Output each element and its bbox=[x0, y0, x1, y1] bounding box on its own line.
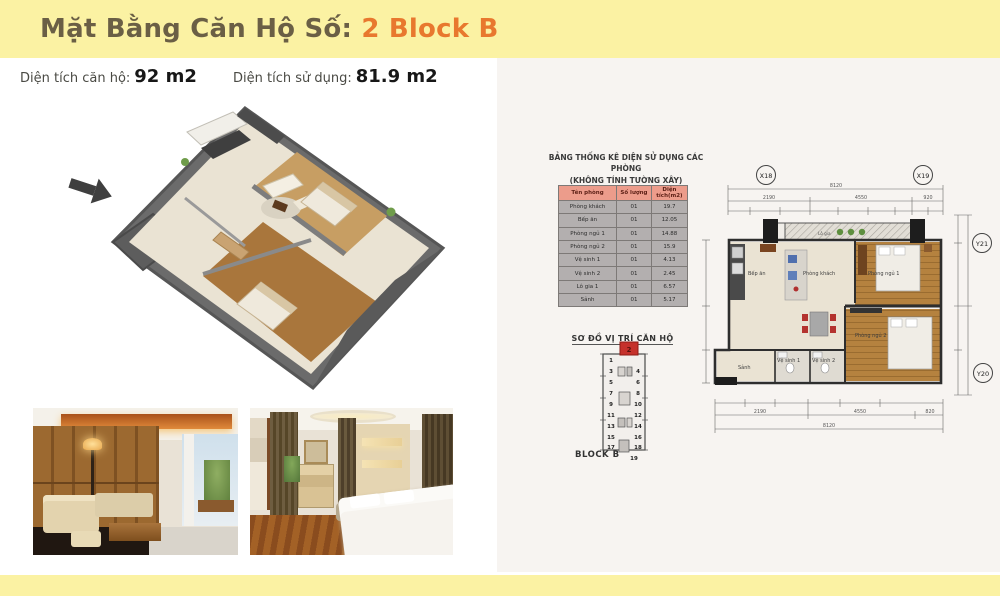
cell-room: Sảnh bbox=[559, 294, 617, 307]
label-hall: Sảnh bbox=[738, 364, 751, 371]
page-title-prefix: Mặt Bằng Căn Hộ Số: bbox=[40, 14, 352, 44]
cell-room: Vệ sinh 2 bbox=[559, 267, 617, 280]
cell-qty: 01 bbox=[617, 214, 652, 227]
technical-panel: BẢNG THỐNG KÊ DIỆN SỬ DỤNG CÁC PHÒNG (KH… bbox=[497, 58, 1000, 572]
cell-room: Bếp ăn bbox=[559, 214, 617, 227]
core-box bbox=[627, 418, 632, 427]
photo1-planter bbox=[198, 500, 234, 512]
unit-2-number: 2 bbox=[627, 346, 632, 354]
dimension-values-bottom: 2190 4550 820 8120 bbox=[754, 409, 935, 429]
cell-area: 19.7 bbox=[651, 201, 687, 214]
table-row: Lô gia 1016.57 bbox=[559, 280, 688, 293]
svg-text:4: 4 bbox=[636, 369, 640, 375]
core-box bbox=[627, 367, 632, 376]
svg-text:5: 5 bbox=[609, 380, 613, 386]
table-row: Sảnh015.17 bbox=[559, 294, 688, 307]
wc2-toilet bbox=[821, 363, 829, 373]
photo-bedroom[interactable] bbox=[250, 408, 453, 555]
col-room-name: Tên phòng bbox=[559, 186, 617, 201]
bed1-pillow bbox=[894, 247, 905, 255]
island-dot bbox=[794, 287, 799, 292]
svg-text:4550: 4550 bbox=[855, 195, 867, 201]
svg-text:1: 1 bbox=[609, 358, 613, 364]
page-title: Mặt Bằng Căn Hộ Số: 2 Block B bbox=[40, 0, 498, 58]
dining-chair bbox=[802, 326, 808, 333]
label-living: Phòng khách bbox=[803, 270, 835, 277]
cell-room: Phòng ngủ 2 bbox=[559, 240, 617, 253]
label-balcony: Lô gia bbox=[818, 231, 831, 236]
svg-text:7: 7 bbox=[609, 391, 613, 397]
grid-y20: Y20 bbox=[976, 370, 989, 378]
balcony-door-post-left bbox=[763, 219, 778, 243]
grid-x18: X18 bbox=[760, 172, 773, 180]
balcony-door-post-right bbox=[910, 219, 925, 243]
svg-text:6: 6 bbox=[636, 380, 640, 386]
floorplan-page: Mặt Bằng Căn Hộ Số: 2 Block B Diện tích … bbox=[0, 0, 1000, 596]
cell-room: Phòng khách bbox=[559, 201, 617, 214]
dining-chair bbox=[802, 314, 808, 321]
cell-room: Vệ sinh 1 bbox=[559, 254, 617, 267]
photo1-curtain bbox=[184, 434, 194, 526]
cell-qty: 01 bbox=[617, 240, 652, 253]
cell-area: 6.57 bbox=[651, 280, 687, 293]
col-quantity: Số lượng bbox=[617, 186, 652, 201]
cell-qty: 01 bbox=[617, 267, 652, 280]
island-item bbox=[788, 255, 797, 263]
svg-text:8: 8 bbox=[636, 391, 640, 397]
bed1-wardrobe bbox=[858, 245, 867, 275]
room-table-title: BẢNG THỐNG KÊ DIỆN SỬ DỤNG CÁC PHÒNG (KH… bbox=[537, 152, 715, 186]
svg-text:4550: 4550 bbox=[854, 409, 866, 415]
core-box bbox=[619, 440, 629, 452]
technical-floorplan: X18 X19 Y21 Y20 8120 2190 bbox=[690, 155, 1000, 450]
dimension-values-top: 8120 2190 4550 920 bbox=[763, 183, 933, 201]
svg-text:13: 13 bbox=[607, 424, 615, 430]
label-kitchen: Bếp ăn bbox=[748, 270, 766, 277]
bed2-pillow bbox=[891, 319, 902, 327]
svg-text:2190: 2190 bbox=[763, 195, 775, 201]
cell-area: 14.88 bbox=[651, 227, 687, 240]
svg-text:9: 9 bbox=[609, 402, 613, 408]
page-title-highlight: 2 Block B bbox=[361, 14, 498, 44]
cell-qty: 01 bbox=[617, 294, 652, 307]
balcony-plant bbox=[837, 229, 843, 235]
stat-usable-area-value: 81.9 m2 bbox=[356, 66, 438, 87]
table-row: Vệ sinh 2012.45 bbox=[559, 267, 688, 280]
dining-table bbox=[810, 312, 828, 336]
bed2-tv-unit bbox=[850, 308, 882, 313]
photo2-plant bbox=[284, 456, 300, 482]
cell-qty: 01 bbox=[617, 254, 652, 267]
svg-text:10: 10 bbox=[634, 402, 642, 408]
stat-usable-area-label: Diện tích sử dụng: bbox=[233, 71, 352, 86]
stat-total-area: Diện tích căn hộ:92 m2 bbox=[20, 66, 197, 87]
svg-text:2190: 2190 bbox=[754, 409, 766, 415]
photo1-ottoman bbox=[71, 531, 101, 547]
grid-x19: X19 bbox=[917, 172, 930, 180]
svg-text:3: 3 bbox=[609, 369, 613, 375]
photo1-sofa-large bbox=[43, 495, 99, 533]
table-row: Vệ sinh 1014.13 bbox=[559, 254, 688, 267]
entry-door-post bbox=[715, 377, 737, 385]
photo1-lamp-shade bbox=[83, 438, 102, 450]
stat-total-area-value: 92 m2 bbox=[134, 66, 197, 87]
svg-text:15: 15 bbox=[607, 435, 615, 441]
photo1-coffee-table bbox=[109, 523, 161, 541]
photo-living-room[interactable] bbox=[33, 408, 238, 555]
3d-plant-2 bbox=[181, 158, 189, 166]
cell-qty: 01 bbox=[617, 280, 652, 293]
photo1-wall-seam bbox=[33, 482, 159, 484]
photo1-sofa-small bbox=[95, 493, 153, 517]
cell-area: 2.45 bbox=[651, 267, 687, 280]
dining-chair bbox=[830, 326, 836, 333]
cell-qty: 01 bbox=[617, 201, 652, 214]
photo2-dresser bbox=[298, 464, 334, 508]
balcony-plant bbox=[859, 229, 865, 235]
col-area: Diện tích(m2) bbox=[651, 186, 687, 201]
footer-band bbox=[0, 575, 1000, 596]
cell-room: Phòng ngủ 1 bbox=[559, 227, 617, 240]
bed2-pillow bbox=[906, 319, 917, 327]
core-box bbox=[618, 418, 625, 427]
photo2-window-panel bbox=[250, 418, 270, 510]
cell-room: Lô gia 1 bbox=[559, 280, 617, 293]
table-row: Bếp ăn0112.05 bbox=[559, 214, 688, 227]
svg-text:8120: 8120 bbox=[830, 183, 842, 189]
bed1-pillow bbox=[879, 247, 890, 255]
stat-total-area-label: Diện tích căn hộ: bbox=[20, 71, 130, 86]
table-row: Phòng ngủ 20115.9 bbox=[559, 240, 688, 253]
balcony-plant bbox=[848, 229, 854, 235]
cell-area: 15.9 bbox=[651, 240, 687, 253]
svg-text:14: 14 bbox=[634, 424, 642, 430]
cell-qty: 01 bbox=[617, 227, 652, 240]
cell-area: 12.05 bbox=[651, 214, 687, 227]
svg-text:16: 16 bbox=[634, 435, 642, 441]
core-box bbox=[619, 392, 630, 405]
svg-text:11: 11 bbox=[607, 413, 615, 419]
building-location-diagram: 2 1 3 5 7 9 11 bbox=[590, 340, 660, 468]
label-wc2: Vệ sinh 2 bbox=[812, 357, 835, 364]
table-row: Phòng khách0119.7 bbox=[559, 201, 688, 214]
dining-chair bbox=[830, 314, 836, 321]
photo2-mirror bbox=[304, 440, 328, 464]
dimension-lines-top bbox=[728, 185, 943, 215]
photo1-plant bbox=[204, 460, 230, 504]
svg-text:8120: 8120 bbox=[823, 423, 835, 429]
photo2-shelf-light2 bbox=[362, 460, 402, 468]
room-area-table: Tên phòng Số lượng Diện tích(m2) Phòng k… bbox=[558, 185, 688, 307]
core-box bbox=[618, 367, 625, 376]
grid-y21: Y21 bbox=[975, 240, 988, 248]
kitchen-stove bbox=[732, 263, 743, 274]
label-wc1: Vệ sinh 1 bbox=[777, 357, 800, 364]
3d-plant-1 bbox=[387, 208, 396, 217]
entrance-arrow-icon bbox=[66, 171, 116, 209]
cell-area: 4.13 bbox=[651, 254, 687, 267]
svg-text:12: 12 bbox=[634, 413, 642, 419]
svg-text:820: 820 bbox=[925, 409, 934, 415]
island-item bbox=[788, 271, 797, 280]
svg-text:18: 18 bbox=[634, 445, 642, 451]
svg-text:920: 920 bbox=[923, 195, 932, 201]
table-row: Phòng ngủ 10114.88 bbox=[559, 227, 688, 240]
room-table-title-line1: BẢNG THỐNG KÊ DIỆN SỬ DỤNG CÁC PHÒNG bbox=[537, 152, 715, 175]
photo2-shelf-light bbox=[362, 438, 402, 446]
bed1-nightstand bbox=[924, 244, 932, 252]
svg-text:19: 19 bbox=[630, 456, 638, 462]
stat-usable-area: Diện tích sử dụng:81.9 m2 bbox=[233, 66, 438, 87]
label-bed2: Phòng ngủ 2 bbox=[855, 332, 886, 339]
tv-cabinet bbox=[760, 244, 776, 252]
table-header-row: Tên phòng Số lượng Diện tích(m2) bbox=[559, 186, 688, 201]
cell-area: 5.17 bbox=[651, 294, 687, 307]
kitchen-sink bbox=[732, 247, 743, 258]
label-bed1: Phòng ngủ 1 bbox=[868, 270, 899, 277]
apartment-3d-render bbox=[35, 90, 475, 400]
block-label: BLOCK B bbox=[575, 450, 620, 460]
wc1-toilet bbox=[786, 363, 794, 373]
